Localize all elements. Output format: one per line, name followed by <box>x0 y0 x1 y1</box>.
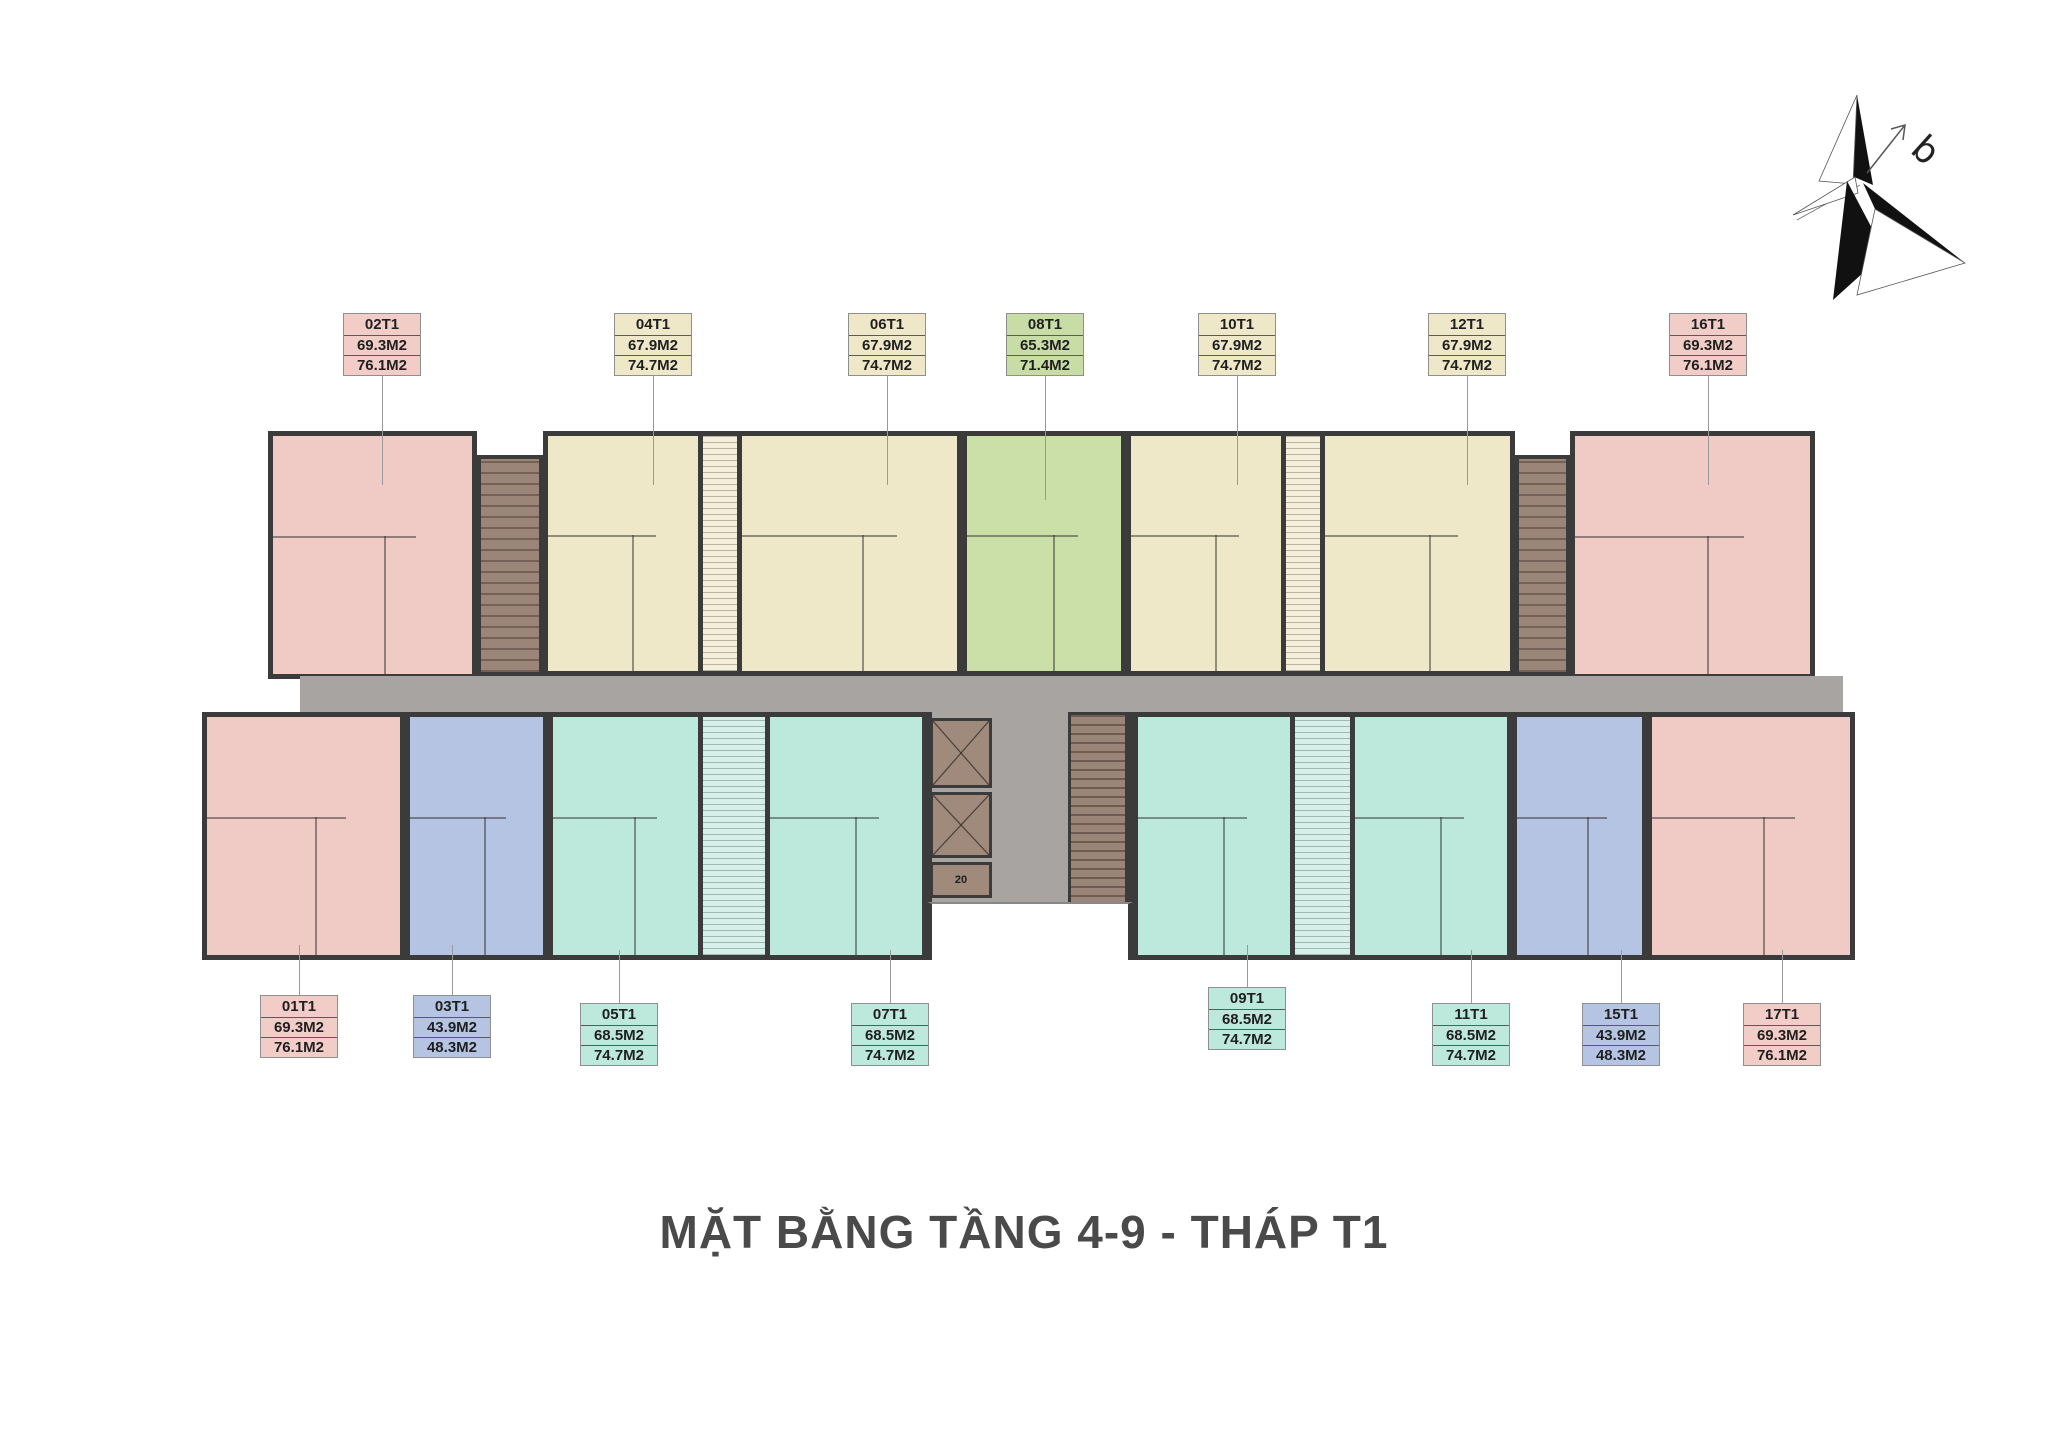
unit-label-10T1: 10T1 67.9M2 74.7M2 <box>1198 313 1276 376</box>
unit-area: 69.3M2 <box>1670 335 1746 355</box>
elevator-shaft <box>930 792 992 858</box>
unit-label-03T1: 03T1 43.9M2 48.3M2 <box>413 995 491 1058</box>
leader-line-06T1 <box>887 375 888 485</box>
unit-label-09T1: 09T1 68.5M2 74.7M2 <box>1208 987 1286 1050</box>
unit-area: 69.3M2 <box>1744 1025 1820 1045</box>
leader-line-10T1 <box>1237 375 1238 485</box>
unit-area: 76.1M2 <box>1670 355 1746 375</box>
stair-shaft-top-right <box>1515 455 1570 676</box>
unit-label-16T1: 16T1 69.3M2 76.1M2 <box>1669 313 1747 376</box>
leader-line-03T1 <box>452 945 453 995</box>
unit-code: 09T1 <box>1209 988 1285 1009</box>
unit-area: 74.7M2 <box>849 355 925 375</box>
unit-03T1-plan <box>405 712 548 960</box>
unit-area: 68.5M2 <box>1433 1025 1509 1045</box>
unit-code: 02T1 <box>344 314 420 335</box>
unit-07T1-plan <box>765 712 927 960</box>
unit-11T1-plan <box>1350 712 1512 960</box>
balcony-strip <box>703 431 737 676</box>
unit-10T1-plan <box>1126 431 1286 676</box>
leader-line-15T1 <box>1621 950 1622 1003</box>
unit-label-08T1: 08T1 65.3M2 71.4M2 <box>1006 313 1084 376</box>
elevator-shaft <box>930 718 992 788</box>
unit-area: 74.7M2 <box>581 1045 657 1065</box>
unit-area: 74.7M2 <box>1429 355 1505 375</box>
unit-05T1-plan <box>548 712 703 960</box>
unit-09T1-plan <box>1133 712 1295 960</box>
unit-code: 03T1 <box>414 996 490 1017</box>
unit-label-11T1: 11T1 68.5M2 74.7M2 <box>1432 1003 1510 1066</box>
unit-area: 74.7M2 <box>1433 1045 1509 1065</box>
unit-12T1-plan <box>1320 431 1515 676</box>
leader-line-01T1 <box>299 945 300 995</box>
unit-area: 69.3M2 <box>344 335 420 355</box>
unit-area: 48.3M2 <box>1583 1045 1659 1065</box>
unit-area: 76.1M2 <box>344 355 420 375</box>
unit-17T1-plan <box>1647 712 1855 960</box>
core-entrance <box>927 902 1133 960</box>
unit-code: 17T1 <box>1744 1004 1820 1025</box>
unit-label-17T1: 17T1 69.3M2 76.1M2 <box>1743 1003 1821 1066</box>
unit-label-15T1: 15T1 43.9M2 48.3M2 <box>1582 1003 1660 1066</box>
leader-line-08T1 <box>1045 375 1046 500</box>
unit-area: 67.9M2 <box>1429 335 1505 355</box>
leader-line-05T1 <box>619 950 620 1003</box>
unit-area: 68.5M2 <box>852 1025 928 1045</box>
leader-line-04T1 <box>653 375 654 485</box>
unit-04T1-plan <box>543 431 703 676</box>
unit-code: 12T1 <box>1429 314 1505 335</box>
stair-shaft-top-left <box>477 455 543 676</box>
unit-label-05T1: 05T1 68.5M2 74.7M2 <box>580 1003 658 1066</box>
unit-area: 65.3M2 <box>1007 335 1083 355</box>
compass-label: b <box>1903 128 1947 174</box>
unit-06T1-plan <box>737 431 962 676</box>
unit-area: 67.9M2 <box>615 335 691 355</box>
unit-code: 05T1 <box>581 1004 657 1025</box>
stair-room: 20 <box>930 862 992 898</box>
unit-label-02T1: 02T1 69.3M2 76.1M2 <box>343 313 421 376</box>
corridor <box>300 676 1843 712</box>
unit-code: 15T1 <box>1583 1004 1659 1025</box>
stair-room-label: 20 <box>955 874 967 886</box>
unit-area: 74.7M2 <box>615 355 691 375</box>
leader-line-02T1 <box>382 375 383 485</box>
unit-code: 08T1 <box>1007 314 1083 335</box>
balcony-strip <box>1286 431 1320 676</box>
leader-line-16T1 <box>1708 375 1709 485</box>
unit-area: 67.9M2 <box>1199 335 1275 355</box>
leader-line-12T1 <box>1467 375 1468 485</box>
unit-code: 06T1 <box>849 314 925 335</box>
unit-area: 74.7M2 <box>1209 1029 1285 1049</box>
unit-area: 74.7M2 <box>1199 355 1275 375</box>
unit-08T1-plan <box>962 431 1126 676</box>
unit-area: 76.1M2 <box>1744 1045 1820 1065</box>
unit-label-01T1: 01T1 69.3M2 76.1M2 <box>260 995 338 1058</box>
unit-15T1-plan <box>1512 712 1647 960</box>
unit-code: 10T1 <box>1199 314 1275 335</box>
unit-label-06T1: 06T1 67.9M2 74.7M2 <box>848 313 926 376</box>
unit-area: 76.1M2 <box>261 1037 337 1057</box>
unit-16T1-plan <box>1570 431 1815 679</box>
leader-line-11T1 <box>1471 950 1472 1003</box>
leader-line-17T1 <box>1782 950 1783 1003</box>
unit-area: 48.3M2 <box>414 1037 490 1057</box>
north-compass-icon: b <box>1785 85 1985 310</box>
unit-code: 04T1 <box>615 314 691 335</box>
unit-label-12T1: 12T1 67.9M2 74.7M2 <box>1428 313 1506 376</box>
unit-area: 68.5M2 <box>581 1025 657 1045</box>
unit-area: 69.3M2 <box>261 1017 337 1037</box>
unit-area: 68.5M2 <box>1209 1009 1285 1029</box>
floorplan-canvas: b 20 20 02T1 69.3M2 76.1M2 <box>0 0 2048 1448</box>
lightwell-strip <box>1295 712 1350 960</box>
plan-title: MẶT BẰNG TẦNG 4-9 - THÁP T1 <box>0 1205 2048 1259</box>
unit-01T1-plan <box>202 712 405 960</box>
unit-area: 43.9M2 <box>414 1017 490 1037</box>
unit-code: 16T1 <box>1670 314 1746 335</box>
unit-code: 07T1 <box>852 1004 928 1025</box>
leader-line-09T1 <box>1247 945 1248 987</box>
unit-code: 11T1 <box>1433 1004 1509 1025</box>
unit-02T1-plan <box>268 431 477 679</box>
unit-label-04T1: 04T1 67.9M2 74.7M2 <box>614 313 692 376</box>
leader-line-07T1 <box>890 950 891 1003</box>
lightwell-strip <box>703 712 765 960</box>
unit-area: 67.9M2 <box>849 335 925 355</box>
unit-area: 43.9M2 <box>1583 1025 1659 1045</box>
unit-area: 71.4M2 <box>1007 355 1083 375</box>
unit-area: 74.7M2 <box>852 1045 928 1065</box>
unit-label-07T1: 07T1 68.5M2 74.7M2 <box>851 1003 929 1066</box>
unit-code: 01T1 <box>261 996 337 1017</box>
